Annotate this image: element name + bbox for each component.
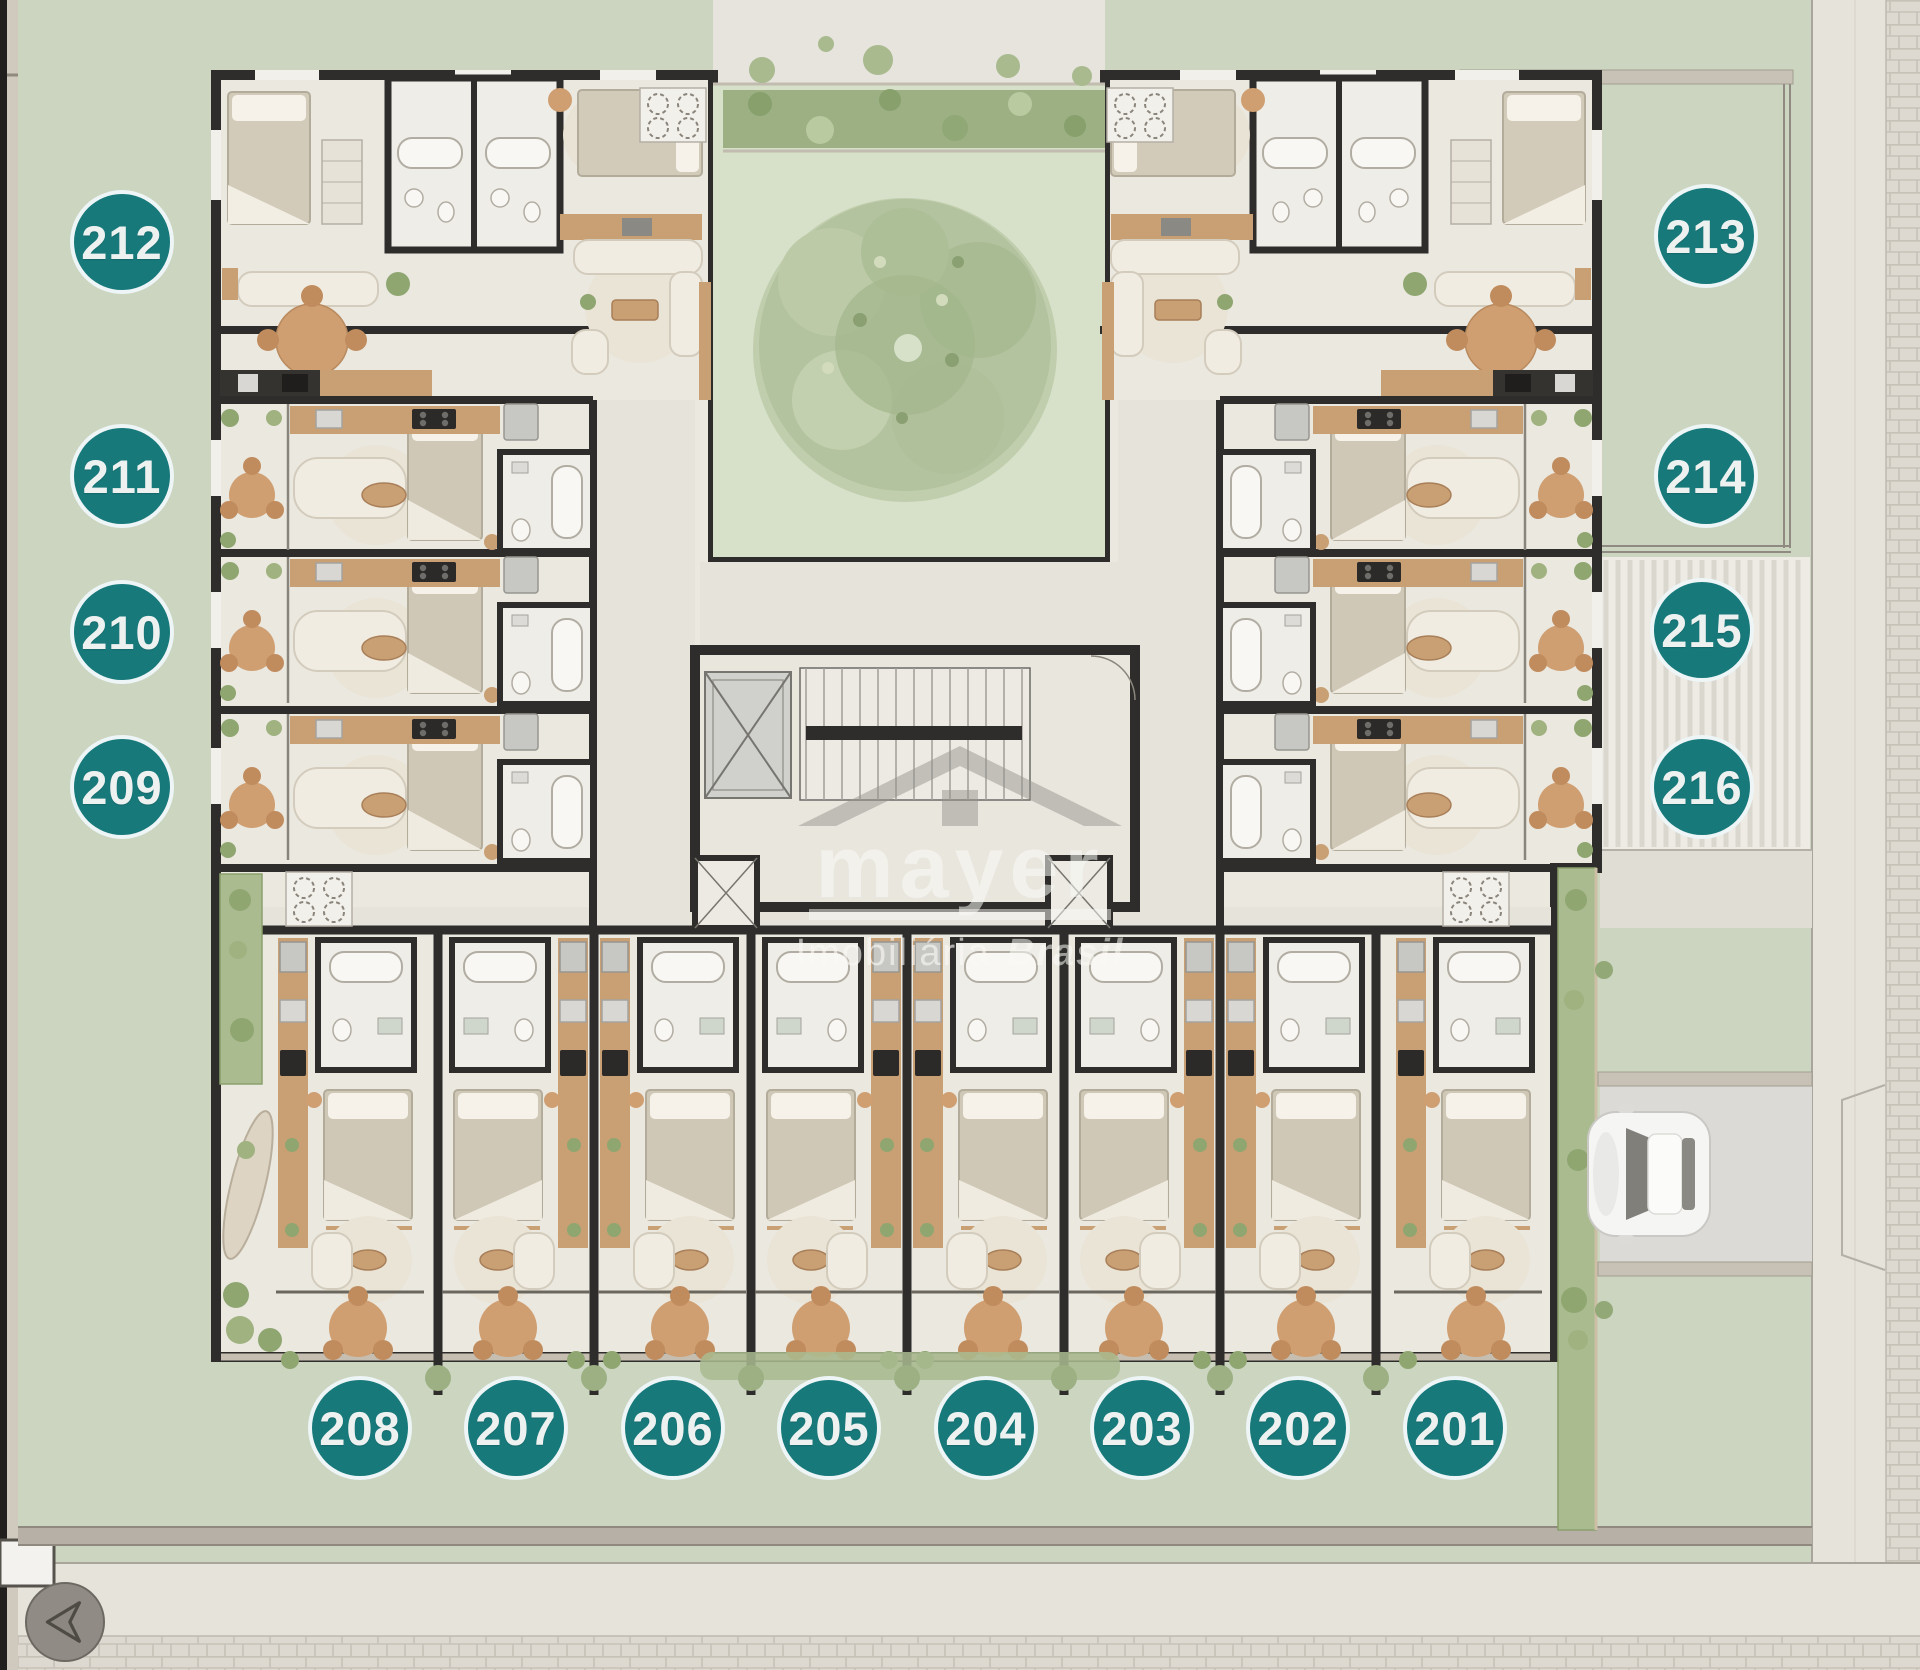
unit-badge-214[interactable]: 214: [1654, 424, 1758, 528]
unit-badge-210[interactable]: 210: [70, 580, 174, 684]
sidewalk-right: [1812, 0, 1920, 1670]
unit-badge-215[interactable]: 215: [1650, 578, 1754, 682]
hedge: [723, 90, 1105, 148]
unit-badge-203[interactable]: 203: [1090, 1376, 1194, 1480]
unit-badge-205[interactable]: 205: [777, 1376, 881, 1480]
stair-elevator-core: [695, 650, 1135, 928]
unit-badge-201[interactable]: 201: [1403, 1376, 1507, 1480]
unit-badge-216[interactable]: 216: [1650, 735, 1754, 839]
unit-badge-209[interactable]: 209: [70, 735, 174, 839]
courtyard-tree: [753, 198, 1057, 502]
corridor-north: [700, 562, 1130, 646]
stairs: [800, 668, 1030, 800]
unit-badge-204[interactable]: 204: [934, 1376, 1038, 1480]
sidewalk-bottom: [0, 1563, 1920, 1670]
back-button[interactable]: [25, 1582, 105, 1662]
unit-badge-202[interactable]: 202: [1246, 1376, 1350, 1480]
unit-badge-207[interactable]: 207: [464, 1376, 568, 1480]
unit-badge-208[interactable]: 208: [308, 1376, 412, 1480]
unit-badge-206[interactable]: 206: [621, 1376, 725, 1480]
arrow-left-icon: [33, 1590, 97, 1654]
garden-fence: [18, 1527, 1812, 1545]
floor-plan-page: mayer ImobiliáriaBrasil 212 211 210 209 …: [0, 0, 1920, 1670]
car: [1588, 1104, 1710, 1244]
elevator: [705, 672, 791, 798]
unit-badge-211[interactable]: 211: [70, 424, 174, 528]
unit-badge-212[interactable]: 212: [70, 190, 174, 294]
corridor-west: [593, 400, 695, 930]
unit-badge-213[interactable]: 213: [1654, 184, 1758, 288]
planter-west: [220, 874, 262, 1084]
